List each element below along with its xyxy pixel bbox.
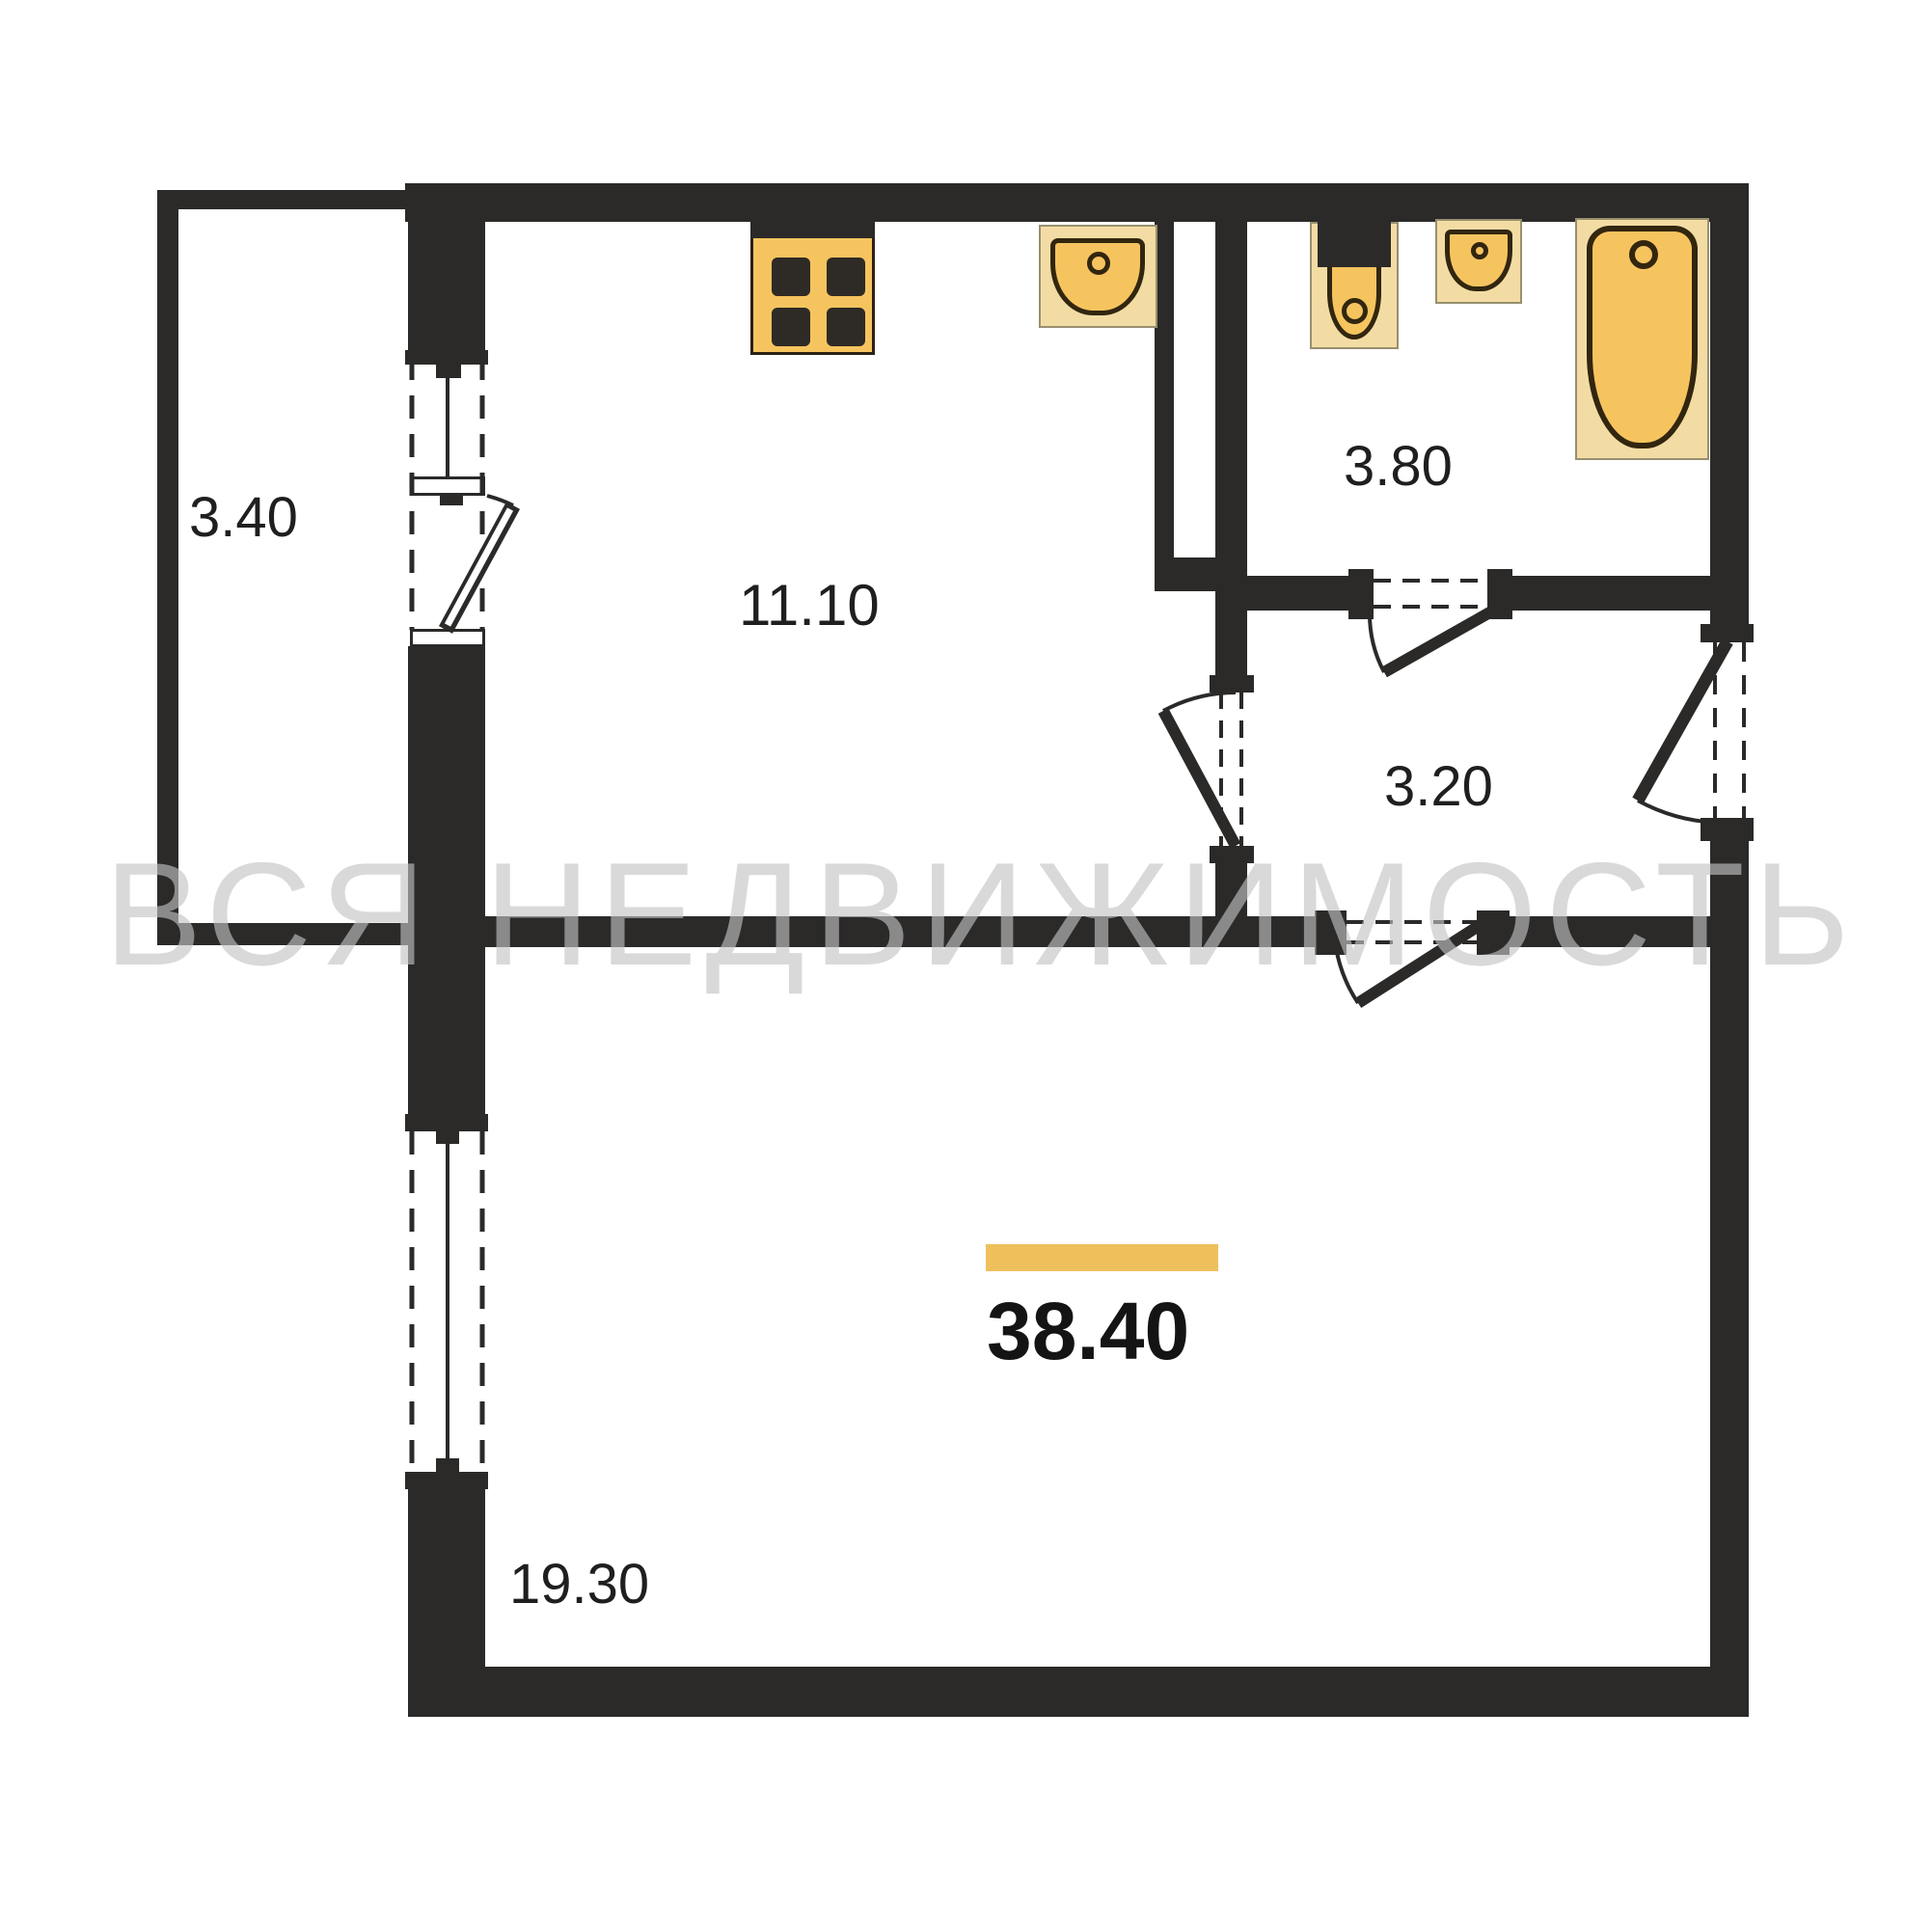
living-door-leaf <box>1358 926 1479 1003</box>
balcony-door-leaf-core <box>448 509 510 625</box>
living-door-swing-arc <box>1336 947 1358 1003</box>
kitchen-door-leaf <box>1163 711 1236 846</box>
floor-plan: 3.40 11.10 3.80 3.20 19.30 38.40 ВСЯ НЕД… <box>0 0 1932 1929</box>
bathroom-door-leaf <box>1384 611 1493 672</box>
bathroom-door-swing-arc <box>1370 613 1384 672</box>
kitchen-door-swing-arc <box>1163 693 1236 711</box>
balcony-door-swing-arc <box>487 496 513 505</box>
doors-windows-layer <box>0 0 1932 1929</box>
